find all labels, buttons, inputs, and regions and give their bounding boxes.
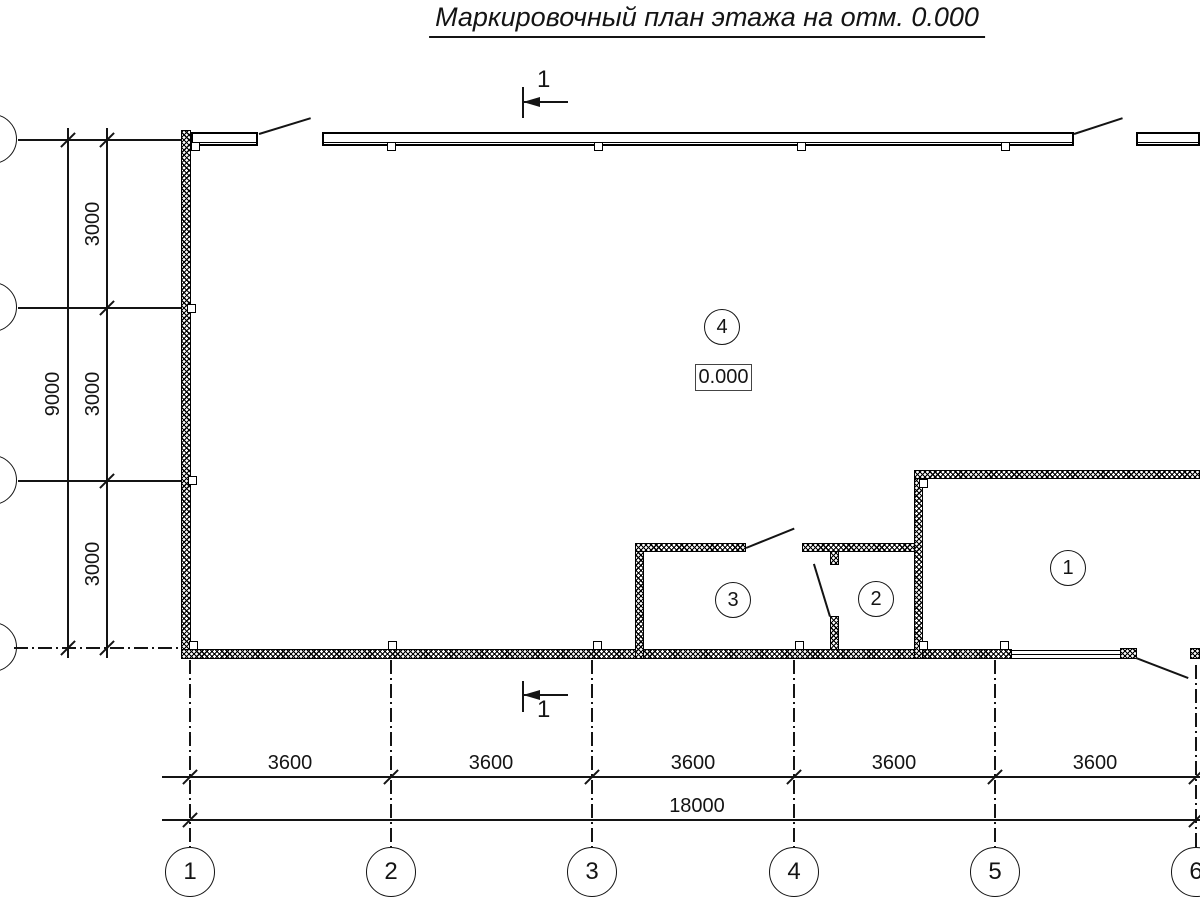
column-post bbox=[797, 142, 806, 151]
column-axis-bubble-5: 5 bbox=[970, 847, 1020, 897]
wall-partition bbox=[830, 616, 839, 650]
column-axis-bubble-4: 4 bbox=[769, 847, 819, 897]
column-post bbox=[795, 641, 804, 650]
column-post bbox=[919, 479, 928, 488]
dim-label-3000: 3000 bbox=[82, 184, 104, 264]
dim-label-3000: 3000 bbox=[82, 524, 104, 604]
gate-leaf bbox=[259, 117, 311, 135]
room-number-1: 1 bbox=[1050, 550, 1086, 586]
dim-label-9000: 9000 bbox=[42, 354, 64, 434]
dim-label-3000: 3000 bbox=[82, 354, 104, 434]
wall-room1-left bbox=[914, 470, 923, 659]
row-axis-line bbox=[18, 307, 181, 309]
section-mark-label-top: 1 bbox=[537, 66, 550, 94]
dim-line-vertical-segments bbox=[106, 128, 108, 658]
dim-label-3600: 3600 bbox=[859, 752, 929, 775]
dim-label-3600: 3600 bbox=[658, 752, 728, 775]
column-post bbox=[1001, 142, 1010, 151]
column-axis-bubble-6: 6 bbox=[1171, 847, 1200, 897]
dim-line-vertical-overall bbox=[67, 128, 69, 658]
drawing-title: Маркировочный план этажа на отм. 0.000 bbox=[429, 2, 985, 38]
wall-pier bbox=[1190, 648, 1200, 659]
column-post bbox=[1000, 641, 1009, 650]
dim-label-3600: 3600 bbox=[1060, 752, 1130, 775]
wall-door-jamb bbox=[830, 551, 839, 565]
section-mark-label-bottom: 1 bbox=[537, 696, 550, 724]
row-axis-line bbox=[18, 139, 181, 141]
dim-label-3600: 3600 bbox=[255, 752, 325, 775]
dim-line-bottom-segments bbox=[162, 776, 1200, 778]
floor-plan-drawing: Маркировочный план этажа на отм. 0.000 3… bbox=[0, 0, 1200, 900]
column-axis-bubble-3: 3 bbox=[567, 847, 617, 897]
window-band bbox=[322, 132, 1074, 146]
room-number-2: 2 bbox=[858, 581, 894, 617]
dim-label-3600: 3600 bbox=[456, 752, 526, 775]
dim-label-18000: 18000 bbox=[662, 795, 732, 818]
column-post bbox=[387, 142, 396, 151]
door-leaf-room2 bbox=[813, 564, 831, 617]
wall-room2-top bbox=[802, 543, 923, 552]
window-band-bottom bbox=[1012, 650, 1120, 659]
row-axis-bubble bbox=[0, 455, 17, 505]
column-post bbox=[191, 142, 200, 151]
window-band bbox=[1136, 132, 1200, 146]
wall-left bbox=[181, 130, 191, 659]
door-leaf-room3 bbox=[746, 528, 795, 549]
window-band bbox=[191, 132, 258, 146]
room-number-3: 3 bbox=[715, 582, 751, 618]
column-post bbox=[189, 641, 198, 650]
column-post bbox=[388, 641, 397, 650]
elevation-mark: 0.000 bbox=[695, 364, 752, 391]
column-post bbox=[593, 641, 602, 650]
column-axis-bubble-1: 1 bbox=[165, 847, 215, 897]
column-post bbox=[188, 476, 197, 485]
room-number-4: 4 bbox=[704, 309, 740, 345]
wall-room3-left bbox=[635, 543, 644, 659]
wall-room1-top bbox=[914, 470, 1200, 479]
row-axis-line bbox=[14, 647, 182, 649]
row-axis-bubble bbox=[0, 114, 17, 164]
column-post bbox=[919, 641, 928, 650]
column-post bbox=[594, 142, 603, 151]
wall-bottom bbox=[181, 649, 1012, 659]
gate-leaf-bottom bbox=[1136, 657, 1189, 679]
column-post bbox=[187, 304, 196, 313]
wall-room3-top bbox=[635, 543, 746, 552]
wall-pier bbox=[1120, 648, 1137, 659]
column-axis-bubble-2: 2 bbox=[366, 847, 416, 897]
row-axis-line bbox=[18, 480, 181, 482]
dim-line-bottom-overall bbox=[162, 819, 1200, 821]
section-arrow-icon bbox=[523, 97, 540, 107]
gate-leaf bbox=[1074, 117, 1123, 134]
row-axis-bubble bbox=[0, 282, 17, 332]
